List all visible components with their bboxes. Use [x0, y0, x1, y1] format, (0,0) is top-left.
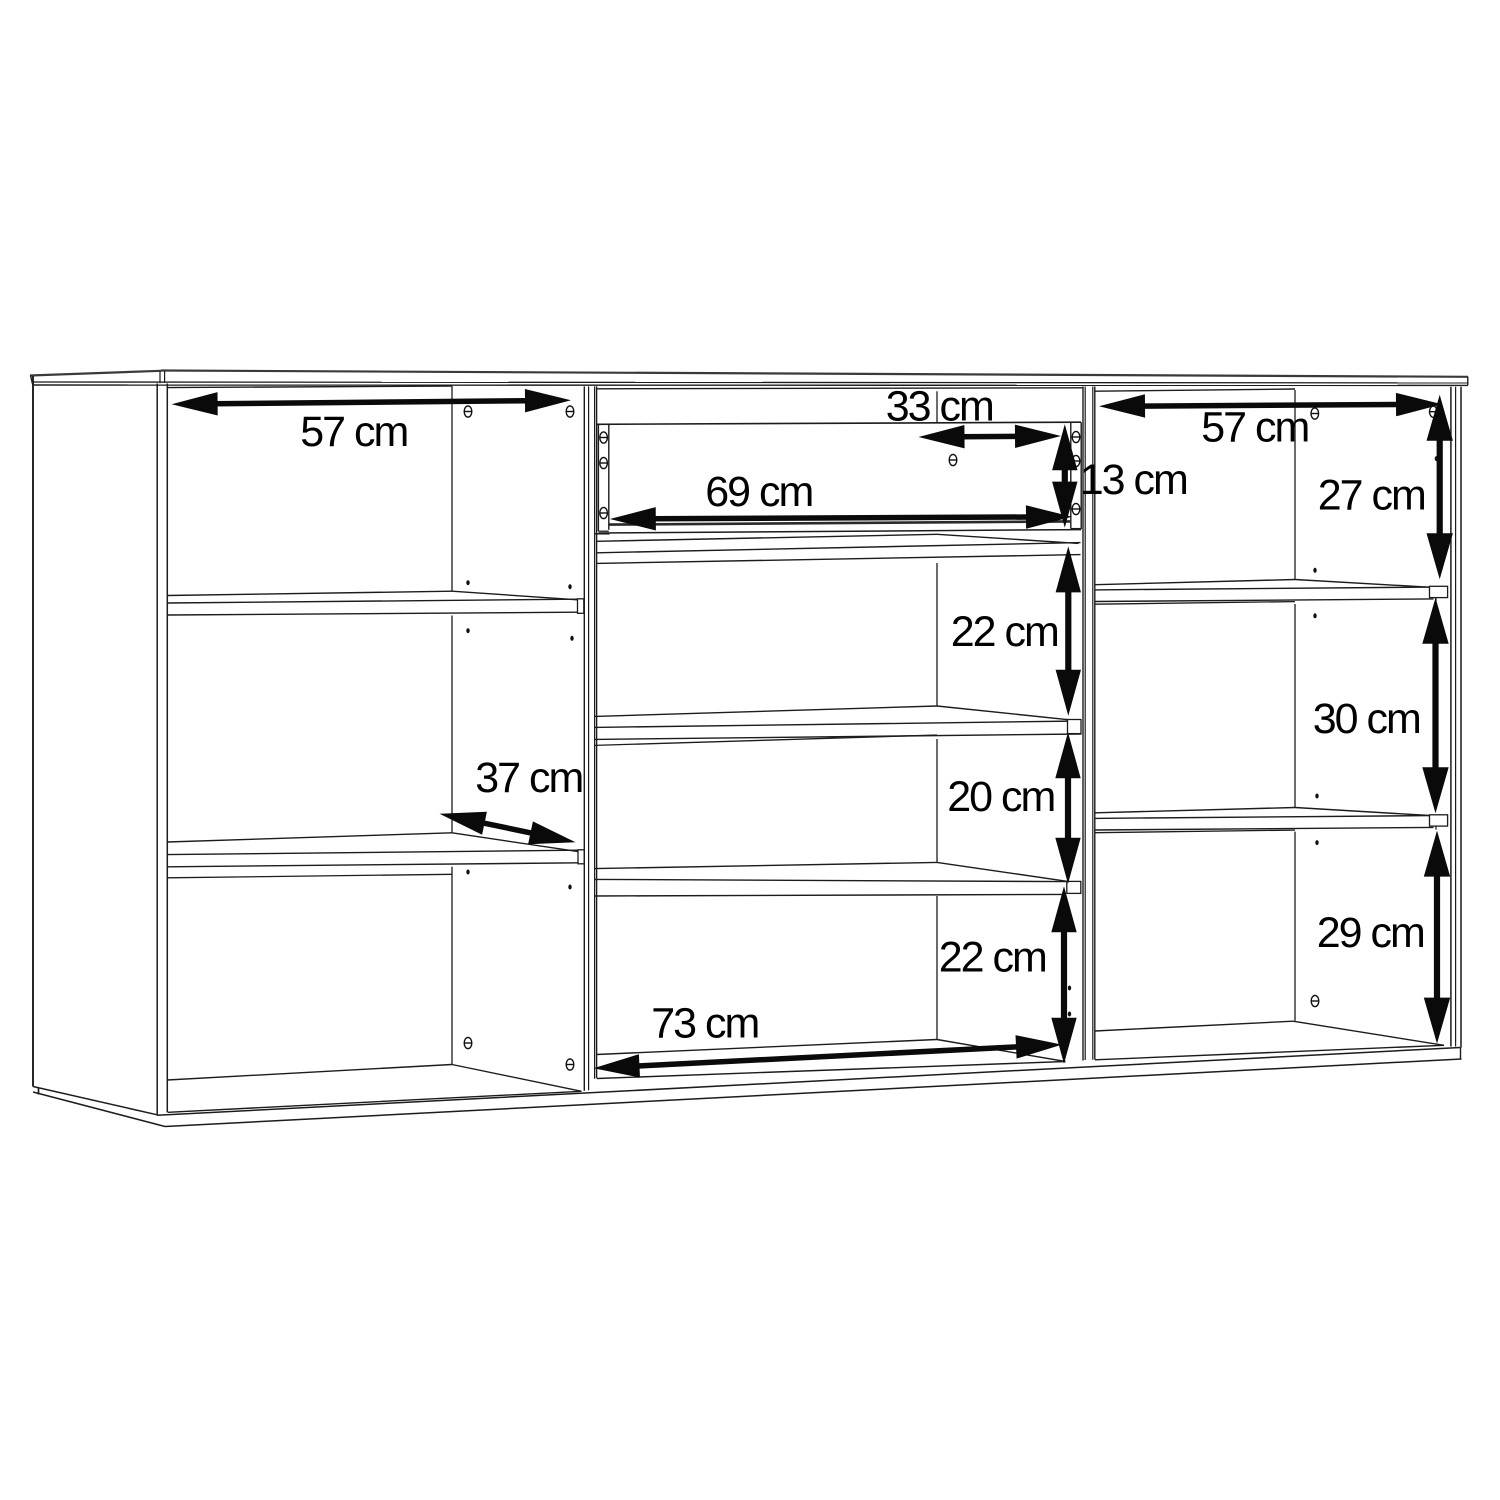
svg-text:33 cm: 33 cm [886, 383, 993, 431]
svg-text:29 cm: 29 cm [1317, 909, 1424, 957]
svg-text:69 cm: 69 cm [705, 468, 812, 516]
svg-text:27 cm: 27 cm [1318, 472, 1425, 520]
svg-text:13 cm: 13 cm [1080, 456, 1187, 504]
svg-text:30 cm: 30 cm [1313, 695, 1420, 743]
svg-text:57 cm: 57 cm [300, 408, 407, 456]
svg-text:22 cm: 22 cm [939, 934, 1046, 982]
svg-text:73 cm: 73 cm [651, 1000, 758, 1048]
svg-text:22 cm: 22 cm [951, 608, 1058, 656]
svg-text:57 cm: 57 cm [1201, 404, 1308, 452]
svg-text:20 cm: 20 cm [947, 773, 1054, 821]
svg-text:37 cm: 37 cm [475, 754, 582, 802]
